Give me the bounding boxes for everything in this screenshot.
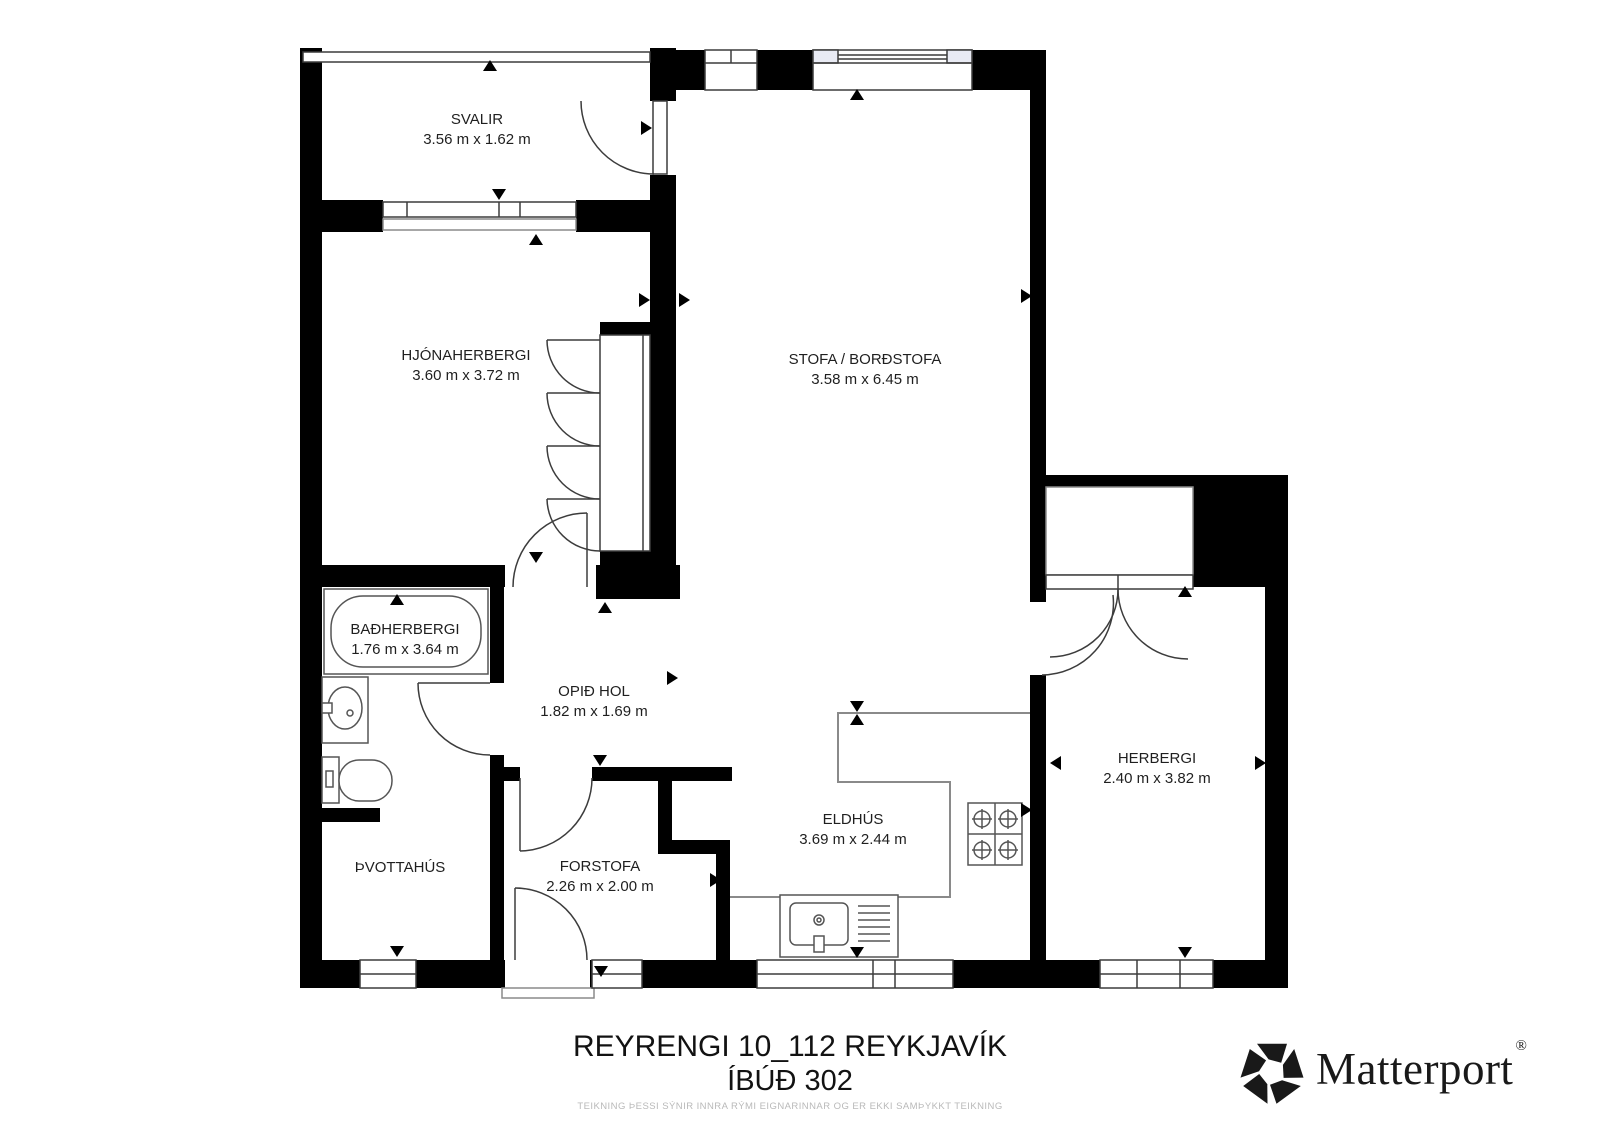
room-label-forstofa: FORSTOFA 2.26 m x 2.00 m (546, 857, 654, 897)
stove (968, 803, 1022, 865)
room-label-hjonaherbergi: HJÓNAHERBERGI 3.60 m x 3.72 m (401, 346, 530, 386)
room-label-opid-hol: OPIÐ HOL 1.82 m x 1.69 m (540, 682, 648, 722)
plan-title-line1: REYRENGI 10_112 REYKJAVÍK (573, 1030, 1007, 1064)
room-label-badherbergi: BAÐHERBERGI 1.76 m x 3.64 m (350, 620, 459, 660)
room-name: ÞVOTTAHÚS (355, 858, 446, 878)
room-dims: 1.82 m x 1.69 m (540, 702, 648, 722)
bathroom-sink (322, 677, 368, 743)
room-name: FORSTOFA (546, 857, 654, 877)
room-dims: 3.69 m x 2.44 m (799, 830, 907, 850)
room-dims: 2.40 m x 3.82 m (1103, 769, 1211, 789)
room-name: ELDHÚS (799, 810, 907, 830)
kitchen-sink (780, 895, 898, 957)
room-label-herbergi: HERBERGI 2.40 m x 3.82 m (1103, 749, 1211, 789)
room-label-eldhus: ELDHÚS 3.69 m x 2.44 m (799, 810, 907, 850)
closet (1046, 487, 1193, 589)
room-dims: 2.26 m x 2.00 m (546, 877, 654, 897)
room-name: BAÐHERBERGI (350, 620, 459, 640)
floor-plan-page: SVALIR 3.56 m x 1.62 m HJÓNAHERBERGI 3.6… (0, 0, 1600, 1131)
matterport-logo-text: Matterport® (1316, 1043, 1525, 1095)
floor-plan (0, 0, 1600, 1131)
wardrobe (547, 335, 650, 551)
room-name: OPIÐ HOL (540, 682, 648, 702)
plan-title: REYRENGI 10_112 REYKJAVÍK ÍBÚÐ 302 (573, 1030, 1007, 1098)
room-dims: 3.56 m x 1.62 m (423, 130, 531, 150)
room-name: SVALIR (423, 110, 531, 130)
matterport-logo-spacer (1236, 1034, 1304, 1104)
room-name: HERBERGI (1103, 749, 1211, 769)
room-label-thvottahus: ÞVOTTAHÚS (355, 858, 446, 878)
logo-wordmark: Matterport (1316, 1044, 1513, 1094)
matterport-logo: Matterport® (1236, 1034, 1525, 1104)
registered-mark: ® (1515, 1038, 1527, 1054)
room-dims: 3.60 m x 3.72 m (401, 366, 530, 386)
room-dims: 3.58 m x 6.45 m (789, 370, 942, 390)
room-dims: 1.76 m x 3.64 m (350, 640, 459, 660)
room-name: STOFA / BORÐSTOFA (789, 350, 942, 370)
room-name: HJÓNAHERBERGI (401, 346, 530, 366)
disclaimer: TEIKNING ÞESSI SÝNIR INNRA RÝMI EIGNARIN… (577, 1101, 1002, 1112)
room-label-stofa: STOFA / BORÐSTOFA 3.58 m x 6.45 m (789, 350, 942, 390)
room-label-svalir: SVALIR 3.56 m x 1.62 m (423, 110, 531, 150)
plan-title-line2: ÍBÚÐ 302 (573, 1064, 1007, 1098)
toilet (322, 757, 392, 803)
